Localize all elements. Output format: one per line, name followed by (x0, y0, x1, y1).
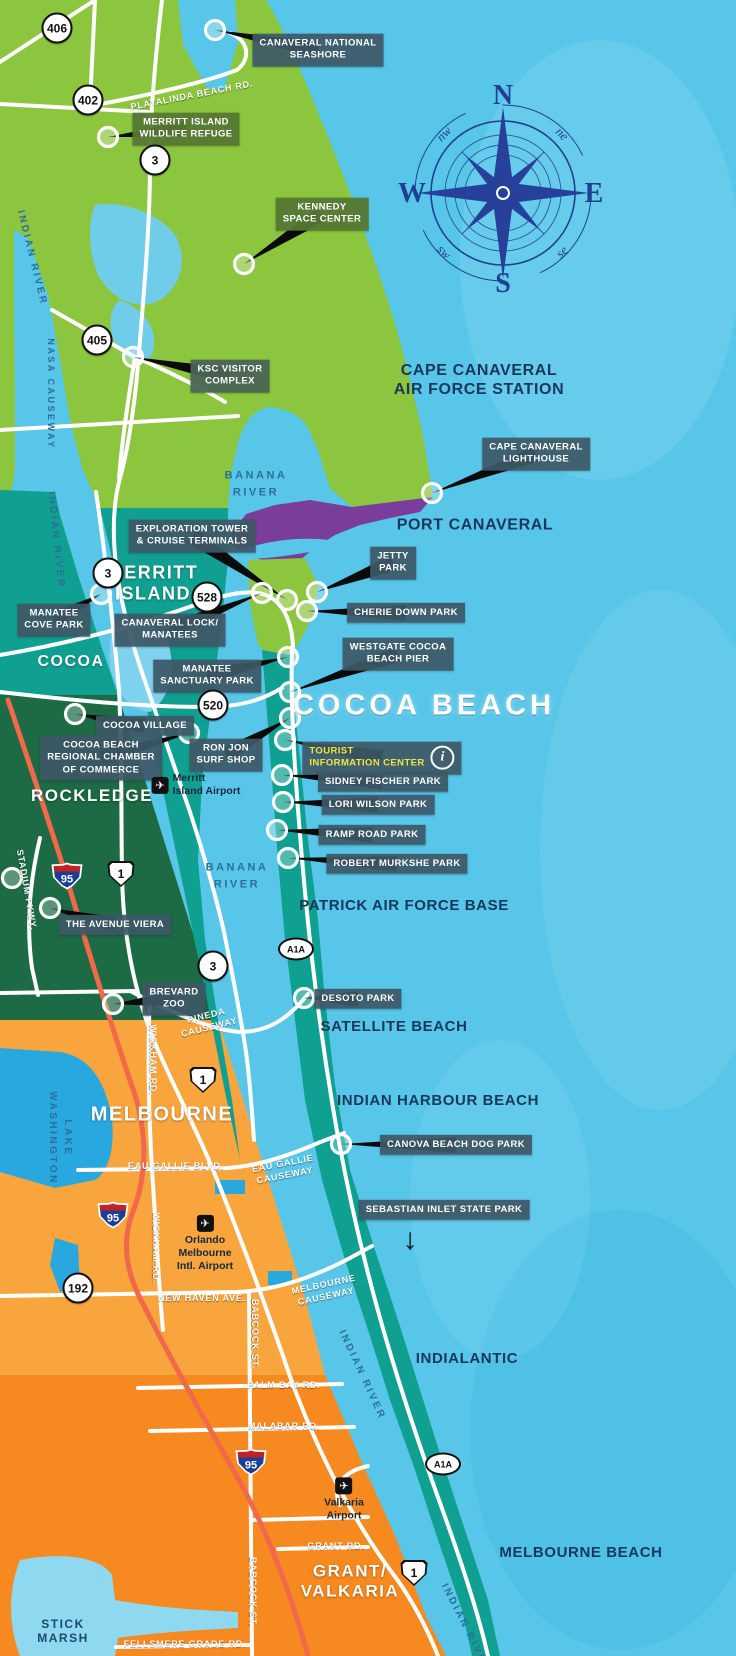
label-line: RIVER (206, 876, 269, 893)
label-line: BEACH PIER (350, 654, 447, 666)
water-label-banana-river-n: BANANARIVER (225, 468, 288, 501)
airplane-icon: ✈ (197, 1215, 214, 1232)
label-line: BABCOCK ST. (248, 1299, 260, 1369)
label-line: Merritt (173, 772, 241, 785)
area-label-cocoa-beach: COCOA BEACH (293, 690, 555, 723)
poi-label-canaveral-lock-manatees: CANAVERAL LOCK/MANATEES (115, 614, 226, 647)
route-shield-3: 3 (198, 951, 229, 982)
water-label-banana-river-s: BANANARIVER (206, 860, 269, 893)
label-line: CANAVERAL NATIONAL (260, 38, 377, 50)
label-line: Melbourne (177, 1247, 233, 1260)
road-label-melbourne-causeway: MELBOURNECAUSEWAY (291, 1273, 360, 1309)
label-line: JETTY (377, 551, 409, 563)
label-line: LIGHTHOUSE (489, 454, 583, 466)
poi-label-ksc-visitor-complex: KSC VISITORCOMPLEX (191, 360, 270, 393)
orlando-melbourne-intl-airport: ✈OrlandoMelbourneIntl. Airport (177, 1215, 233, 1273)
label-line: GRANT RD. (307, 1541, 364, 1553)
label-line: TOURIST (309, 746, 424, 758)
label-line: MELBOURNE (91, 1104, 233, 1127)
airplane-icon: ✈ (152, 777, 169, 794)
water-label-indian-river-mid: INDIAN RIVER (43, 491, 68, 590)
label-line: NEW HAVEN AVE. (158, 1293, 246, 1305)
label-line: THE AVENUE VIERA (66, 919, 164, 931)
poi-label-cherie-down-park: CHERIE DOWN PARK (347, 603, 465, 623)
poi-label-westgate-cocoa-beach-pier: WESTGATE COCOABEACH PIER (343, 638, 454, 671)
area-label-melbourne-beach: MELBOURNE BEACH (499, 1544, 662, 1562)
label-line: SURF SHOP (196, 755, 255, 767)
label-line: MANATEES (122, 630, 219, 642)
label-line: COVE PARK (24, 620, 83, 632)
label-line: PATRICK AIR FORCE BASE (299, 897, 509, 915)
info-icon: i (431, 746, 455, 770)
airport-name: MerrittIsland Airport (173, 772, 241, 798)
route-shield-405: 405 (82, 325, 113, 356)
poi-label-exploration-tower-cruise-terminals: EXPLORATION TOWER& CRUISE TERMINALS (129, 520, 256, 553)
poi-label-robert-murkshe-park: ROBERT MURKSHE PARK (326, 854, 467, 874)
label-line: GRANT/ (301, 1561, 400, 1581)
label-line: WICKHAM RD. (146, 1024, 158, 1095)
route-shield-528: 528 (192, 582, 223, 613)
area-label-satellite-beach: SATELLITE BEACH (320, 1018, 467, 1036)
label-line: LAKE (60, 1091, 75, 1185)
label-line: Orlando (177, 1234, 233, 1247)
poi-label-cocoa-village: COCOA VILLAGE (96, 716, 194, 736)
poi-label-jetty-park: JETTYPARK (370, 547, 416, 580)
road-label-wickham-rd-n: WICKHAM RD. (146, 1024, 158, 1095)
label-line: COMPLEX (198, 376, 263, 388)
label-line: MARSH (37, 1631, 89, 1645)
label-line: WASHINGTON (45, 1091, 60, 1185)
label-line: INDIAN RIVER (43, 491, 68, 590)
label-line: INDIALANTIC (416, 1350, 518, 1368)
label-line: WILDLIFE REFUGE (139, 129, 232, 141)
poi-label-brevard-zoo: BREVARDZOO (142, 983, 205, 1016)
label-line: REGIONAL CHAMBER (47, 752, 155, 764)
shield-number: 1 (403, 1562, 426, 1584)
label-line: Valkaria (324, 1496, 364, 1509)
label-line: CANAVERAL LOCK/ (122, 618, 219, 630)
label-line: & CRUISE TERMINALS (136, 536, 249, 548)
label-line: INDIAN HARBOUR BEACH (337, 1092, 539, 1110)
interstate-shield-95: 95 (98, 1202, 129, 1229)
label-line: EAU GALLIE BLVD. (128, 1161, 224, 1173)
road-label-palm-bay-rd: PALM BAY RD. (248, 1380, 321, 1392)
label-line: MERRITT ISLAND (139, 117, 232, 129)
water-label-indian-river-s1: INDIAN RIVER (335, 1328, 390, 1423)
label-line: NASA CAUSEWAY (43, 338, 57, 449)
label-line: SANCTUARY PARK (160, 676, 254, 688)
shield-number: 95 (54, 865, 81, 888)
label-line: MALABAR RD. (248, 1421, 320, 1433)
label-line: LORI WILSON PARK (329, 799, 428, 811)
us-route-shield-1: 1 (401, 1560, 428, 1586)
poi-label-sidney-fischer-park: SIDNEY FISCHER PARK (318, 772, 448, 792)
label-line: BANANA (225, 468, 288, 485)
shield-number: 95 (100, 1204, 127, 1227)
label-line: FELLSMERE GRADE RD. (124, 1639, 247, 1651)
label-line: SEASHORE (260, 50, 377, 62)
poi-label-manatee-sanctuary-park: MANATEESANCTUARY PARK (153, 660, 261, 693)
label-line: COCOA BEACH (47, 739, 155, 751)
label-line: PALM BAY RD. (248, 1380, 321, 1392)
merritt-island-airport: ✈MerrittIsland Airport (152, 772, 241, 798)
label-line: EXPLORATION TOWER (136, 524, 249, 536)
road-label-eau-gallie-causeway: EAU GALLIECAUSEWAY (251, 1153, 317, 1188)
label-line: MANATEE (160, 664, 254, 676)
water-label-stick-marsh: STICKMARSH (37, 1617, 89, 1645)
label-line: SEBASTIAN INLET STATE PARK (366, 1204, 523, 1216)
airport-name: OrlandoMelbourneIntl. Airport (177, 1234, 233, 1273)
poi-label-merritt-island-wildlife-refuge: MERRITT ISLANDWILDLIFE REFUGE (132, 113, 239, 146)
label-line: COCOA BEACH (293, 690, 555, 723)
poi-label-cape-canaveral-lighthouse: CAPE CANAVERALLIGHTHOUSE (482, 438, 590, 471)
label-line: CAPE CANAVERAL (394, 361, 565, 380)
label-line: SATELLITE BEACH (320, 1018, 467, 1036)
water-label-nasa-causeway: NASA CAUSEWAY (43, 338, 57, 449)
label-line: BABCOCK ST. (246, 1557, 258, 1627)
label-line: PARK (377, 563, 409, 575)
poi-label-cocoa-beach-regional-chamber-of-commerce: COCOA BEACHREGIONAL CHAMBEROF COMMERCE (40, 735, 162, 780)
poi-label-ron-jon-surf-shop: RON JONSURF SHOP (189, 739, 262, 772)
water-label-indian-river-s2: INDIAN RIVER (437, 1581, 495, 1656)
label-line: STADIUM PKWY. (13, 849, 39, 932)
label-line: SPACE CENTER (283, 214, 362, 226)
poi-label-canova-beach-dog-park: CANOVA BEACH DOG PARK (380, 1135, 532, 1155)
label-line: CANOVA BEACH DOG PARK (387, 1139, 525, 1151)
shield-number: 1 (192, 1069, 215, 1091)
space-coast-map: N S E W ne nw se sw CANAVERAL NATIONALSE… (0, 0, 736, 1656)
label-line: MELBOURNE BEACH (499, 1544, 662, 1562)
road-label-grant-rd: GRANT RD. (307, 1541, 364, 1553)
road-label-eau-gallie-blvd: EAU GALLIE BLVD. (128, 1161, 224, 1173)
us-route-shield-1: 1 (190, 1067, 217, 1093)
poi-label-desoto-park: DESOTO PARK (314, 989, 401, 1009)
label-line: AIR FORCE STATION (394, 380, 565, 399)
label-line: MANATEE (24, 608, 83, 620)
area-label-port-canaveral: PORT CANAVERAL (397, 515, 554, 534)
airport-name: ValkariaAirport (324, 1496, 364, 1522)
city-label-cocoa: COCOA (37, 653, 104, 671)
label-line: Airport (324, 1510, 364, 1523)
area-label-patrick-air-force-base: PATRICK AIR FORCE BASE (299, 897, 509, 915)
city-label-grant-valkaria: GRANT/VALKARIA (301, 1561, 400, 1600)
area-label-indian-harbour-beach: INDIAN HARBOUR BEACH (337, 1092, 539, 1110)
road-label-new-haven-ave: NEW HAVEN AVE. (158, 1293, 246, 1305)
route-shield-406: 406 (42, 13, 73, 44)
road-label-playalinda-beach-rd: PLAYALINDA BEACH RD. (130, 78, 254, 113)
valkaria-airport: ✈ValkariaAirport (324, 1477, 364, 1522)
label-line: INDIAN RIVER (437, 1581, 495, 1656)
label-line: WICKHAM RD. (149, 1212, 161, 1283)
interstate-shield-95: 95 (236, 1449, 267, 1476)
route-shield-192: 192 (63, 1273, 94, 1304)
label-line: KSC VISITOR (198, 364, 263, 376)
route-shield-a1a: A1A (425, 1453, 461, 1476)
poi-label-ramp-road-park: RAMP ROAD PARK (319, 825, 426, 845)
label-line: RIVER (225, 484, 288, 501)
down-arrow-icon: ↓ (403, 1223, 418, 1257)
poi-label-tourist-information-center: TOURISTINFORMATION CENTERi (302, 742, 461, 775)
route-shield-a1a: A1A (278, 938, 314, 961)
label-line: CAPE CANAVERAL (489, 442, 583, 454)
label-line: DESOTO PARK (321, 993, 394, 1005)
road-label-wickham-rd-s: WICKHAM RD. (149, 1212, 161, 1283)
city-label-melbourne: MELBOURNE (91, 1104, 233, 1127)
label-line: CHERIE DOWN PARK (354, 607, 458, 619)
interstate-shield-95: 95 (52, 863, 83, 890)
area-label-cape-canaveral-air-force-station: CAPE CANAVERALAIR FORCE STATION (394, 361, 565, 399)
label-line: ISLAND (108, 583, 199, 604)
poi-label-kennedy-space-center: KENNEDYSPACE CENTER (276, 198, 369, 231)
label-line: INFORMATION CENTER (309, 758, 424, 770)
label-line: Intl. Airport (177, 1260, 233, 1273)
label-line: COCOA (37, 653, 104, 671)
label-line: PLAYALINDA BEACH RD. (130, 78, 254, 113)
label-line: INDIAN RIVER (13, 209, 51, 308)
water-label-indian-river-n: INDIAN RIVER (13, 209, 51, 308)
city-label-rockledge: ROCKLEDGE (31, 786, 153, 806)
route-shield-402: 402 (73, 85, 104, 116)
label-line: ROBERT MURKSHE PARK (333, 858, 460, 870)
water-label-lake-washington: LAKEWASHINGTON (45, 1091, 75, 1185)
label-line: OF COMMERCE (47, 764, 155, 776)
poi-label-canaveral-national-seashore: CANAVERAL NATIONALSEASHORE (253, 34, 384, 67)
label-line: BREVARD (149, 987, 198, 999)
shield-number: 95 (238, 1451, 265, 1474)
label-line: SIDNEY FISCHER PARK (325, 776, 441, 788)
label-line: PORT CANAVERAL (397, 515, 554, 534)
route-shield-520: 520 (198, 690, 229, 721)
label-line: Island Airport (173, 785, 241, 798)
poi-label-sebastian-inlet-state-park: SEBASTIAN INLET STATE PARK (359, 1200, 530, 1220)
map-labels-layer: CANAVERAL NATIONALSEASHOREMERRITT ISLAND… (0, 0, 736, 1656)
road-label-malabar-rd: MALABAR RD. (248, 1421, 320, 1433)
airplane-icon: ✈ (335, 1477, 352, 1494)
poi-label-the-avenue-viera: THE AVENUE VIERA (59, 915, 171, 935)
label-line: ROCKLEDGE (31, 786, 153, 806)
label-line: BANANA (206, 860, 269, 877)
road-label-fellsmere-grade-rd: FELLSMERE GRADE RD. (124, 1639, 247, 1651)
road-label-stadium-pkwy: STADIUM PKWY. (13, 849, 39, 932)
label-line: ZOO (149, 999, 198, 1011)
label-line: INDIAN RIVER (335, 1328, 390, 1423)
label-line: WESTGATE COCOA (350, 642, 447, 654)
road-label-babcock-st-n: BABCOCK ST. (248, 1299, 260, 1369)
us-route-shield-1: 1 (108, 861, 135, 887)
shield-number: 1 (110, 863, 133, 885)
road-label-babcock-st-s: BABCOCK ST. (246, 1557, 258, 1627)
label-line: RON JON (196, 743, 255, 755)
tourist-label-text: TOURISTINFORMATION CENTER (309, 746, 424, 771)
area-label-indialantic: INDIALANTIC (416, 1350, 518, 1368)
route-shield-3: 3 (140, 145, 171, 176)
poi-label-lori-wilson-park: LORI WILSON PARK (322, 795, 435, 815)
label-line: COCOA VILLAGE (103, 720, 187, 732)
label-line: STICK (37, 1617, 89, 1631)
label-line: KENNEDY (283, 202, 362, 214)
label-line: RAMP ROAD PARK (326, 829, 419, 841)
label-line: VALKARIA (301, 1581, 400, 1601)
poi-label-manatee-cove-park: MANATEECOVE PARK (17, 604, 90, 637)
route-shield-3: 3 (93, 558, 124, 589)
